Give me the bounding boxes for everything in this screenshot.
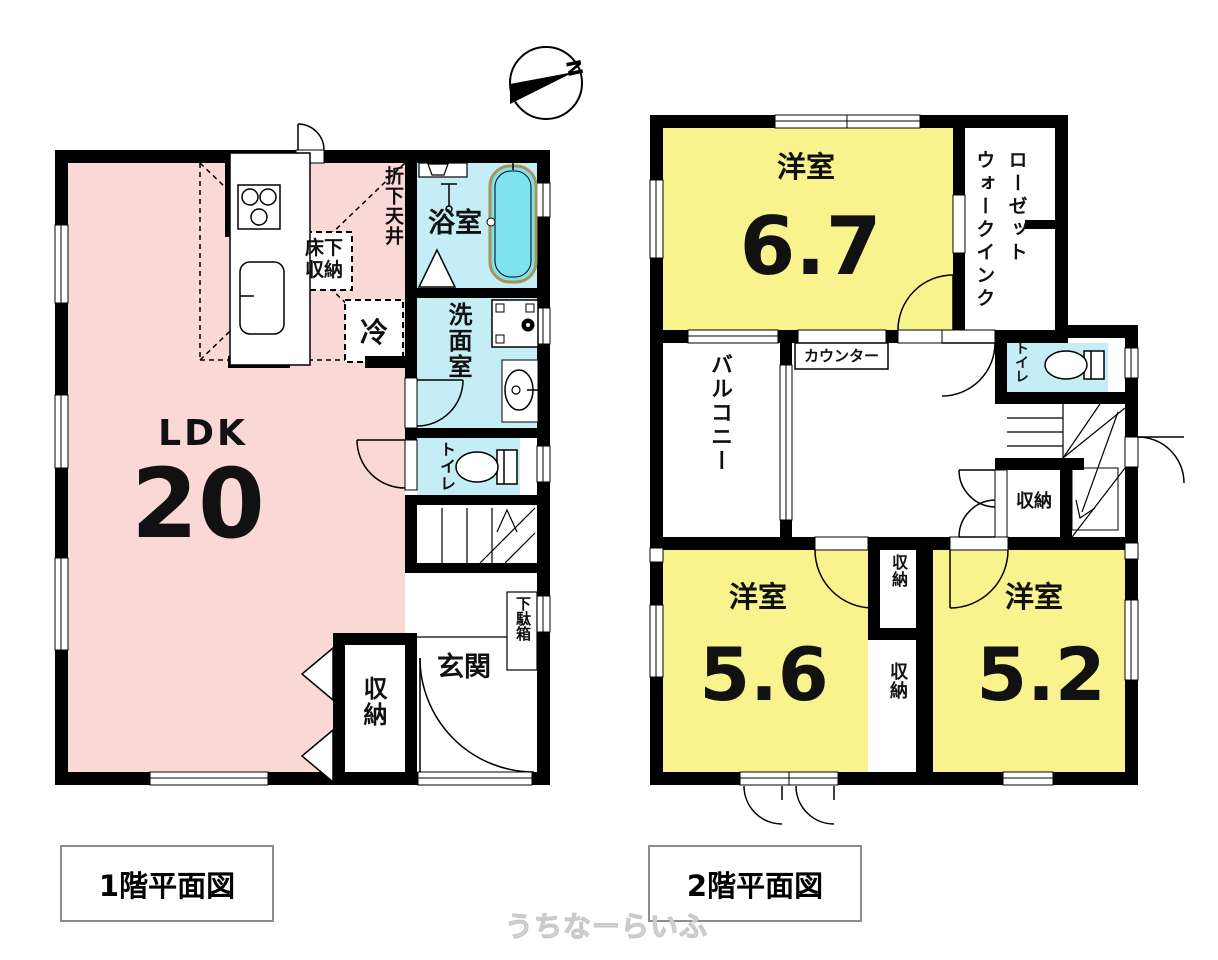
bathtub-icon: [490, 166, 536, 282]
room2-label: 洋室: [720, 576, 796, 614]
walk-in-closet-label: ウォークインクローゼット: [968, 150, 1033, 318]
room1-size-label: 6.7: [728, 186, 893, 306]
toilet2-icon: [1045, 351, 1104, 379]
toilet1-icon: [456, 450, 517, 484]
ldk-room-lower: [67, 633, 333, 772]
room1-label: 洋室: [768, 146, 844, 184]
floorplan-canvas: LDK 20 浴室 洗面室 トイレ 折下天井 床下収納 冷 収納 玄関 下駄箱 …: [0, 0, 1218, 960]
toilet1-label: トイレ: [434, 441, 458, 492]
bath-counter-sink-icon: [428, 164, 448, 175]
storage-f1-label: 収納: [356, 676, 391, 728]
washroom-label: 洗面室: [441, 302, 476, 380]
entrance-label: 玄関: [422, 645, 506, 683]
watermark: うちなーらいふ: [505, 905, 708, 945]
storage-b-label: 収納: [884, 662, 910, 700]
room3-size-label: 5.2: [962, 616, 1120, 734]
room2-size-label: 5.6: [688, 616, 840, 734]
stairs-floor1: [442, 508, 535, 563]
kitchen-sink-icon: [240, 262, 284, 334]
storage-a-label: 収納: [886, 554, 910, 588]
toilet2-label: トイレ: [1011, 341, 1031, 383]
compass-icon: [510, 47, 582, 119]
fridge-label: 冷: [345, 300, 403, 362]
kitchen-counter: [230, 153, 310, 365]
shoe-cabinet-label: 下駄箱: [513, 596, 534, 641]
counter-label: カウンター: [797, 344, 886, 367]
underfloor-storage-label: 床下収納: [302, 238, 346, 282]
room3-label: 洋室: [996, 576, 1072, 614]
storage-stairs-label: 収納: [1008, 486, 1060, 514]
ldk-size-label: 20: [118, 445, 278, 563]
lowered-ceiling-label: 折下天井: [380, 166, 407, 246]
bathroom-label: 浴室: [418, 202, 492, 238]
balcony-label: バルコニー: [703, 353, 735, 473]
floor1-caption: 1階平面図: [60, 845, 274, 922]
